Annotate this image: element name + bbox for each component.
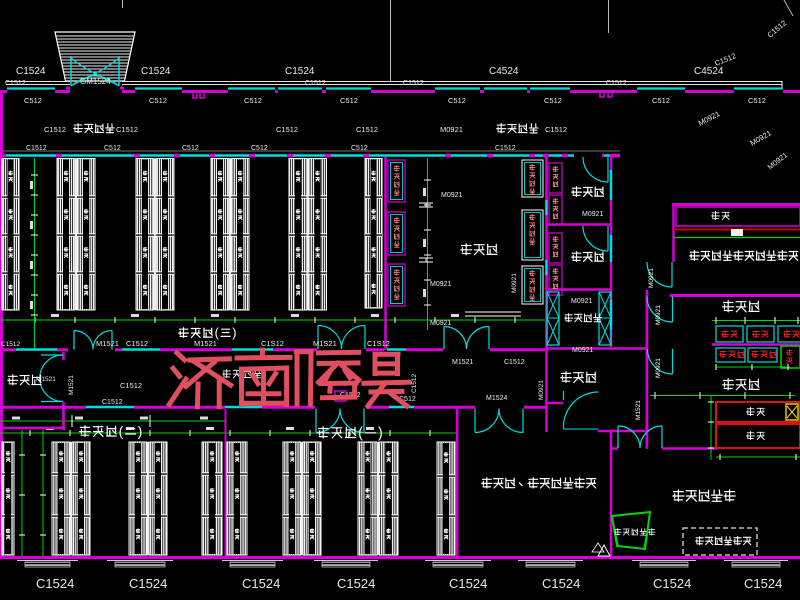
svg-text:M0921: M0921 (440, 125, 463, 134)
svg-text:M0921: M0921 (511, 273, 518, 293)
svg-text:C1524: C1524 (129, 576, 167, 591)
svg-text:C1S12: C1S12 (367, 339, 390, 348)
svg-text:M0921: M0921 (582, 211, 604, 218)
svg-text:M1521: M1521 (194, 339, 217, 348)
svg-text:C1512: C1512 (5, 80, 26, 87)
svg-text:M1521: M1521 (68, 375, 75, 395)
svg-text:C1524: C1524 (337, 576, 375, 591)
svg-text:C512: C512 (652, 96, 670, 105)
svg-text:C512: C512 (544, 96, 562, 105)
svg-text:(: ( (119, 424, 124, 439)
svg-text:C1524: C1524 (449, 576, 487, 591)
svg-text:M1521: M1521 (452, 359, 474, 366)
svg-text:C1512: C1512 (1, 341, 21, 348)
svg-text:C512: C512 (104, 145, 121, 152)
svg-text:): ) (232, 326, 236, 340)
svg-text:M0921: M0921 (430, 320, 452, 327)
svg-text:C1512: C1512 (44, 125, 66, 134)
svg-text:C1524: C1524 (653, 576, 691, 591)
svg-text:M0921: M0921 (441, 192, 463, 199)
svg-text:C1524: C1524 (141, 66, 171, 77)
svg-text:C512: C512 (351, 145, 368, 152)
svg-text:C1512: C1512 (126, 339, 148, 348)
svg-text:): ) (378, 425, 383, 441)
svg-text:C512: C512 (340, 96, 358, 105)
svg-text:C1512: C1512 (116, 125, 138, 134)
svg-text:C1512: C1512 (495, 145, 516, 152)
svg-text:M0921: M0921 (655, 358, 662, 378)
svg-text:M1521: M1521 (96, 339, 119, 348)
svg-text:M0921: M0921 (648, 268, 655, 288)
svg-text:C1512: C1512 (276, 125, 298, 134)
svg-text:C4524: C4524 (694, 66, 724, 77)
svg-text:M1521: M1521 (36, 376, 56, 383)
svg-text:M0921: M0921 (571, 298, 593, 305)
svg-text:C1512: C1512 (403, 80, 424, 87)
svg-text:C1S12: C1S12 (261, 339, 284, 348)
svg-text:): ) (138, 424, 143, 439)
svg-text:C1524: C1524 (16, 66, 46, 77)
svg-text:C512: C512 (251, 145, 268, 152)
svg-text:C1512: C1512 (305, 80, 326, 87)
svg-text:M0921: M0921 (572, 347, 594, 354)
svg-text:C512: C512 (448, 96, 466, 105)
svg-text:M1S21: M1S21 (313, 339, 337, 348)
svg-text:C1512: C1512 (120, 381, 142, 390)
svg-text:C512: C512 (149, 96, 167, 105)
svg-text:C1524: C1524 (36, 576, 74, 591)
svg-text:C1512: C1512 (102, 399, 123, 406)
svg-text:C512: C512 (244, 96, 262, 105)
svg-text:C1524: C1524 (744, 576, 782, 591)
svg-text:C1512: C1512 (356, 125, 378, 134)
svg-text:M0921: M0921 (430, 281, 452, 288)
svg-text:C1512: C1512 (26, 145, 47, 152)
svg-text:C512: C512 (24, 96, 42, 105)
svg-text:GM1524: GM1524 (80, 77, 111, 86)
svg-text:M1524: M1524 (486, 395, 508, 402)
svg-text:(: ( (358, 425, 363, 441)
svg-text:M0921: M0921 (538, 380, 545, 400)
svg-text:C1524: C1524 (542, 576, 580, 591)
svg-text:C512: C512 (748, 96, 766, 105)
svg-text:C1512: C1512 (545, 125, 567, 134)
svg-text:C1512: C1512 (411, 373, 418, 393)
svg-text:C1524: C1524 (242, 576, 280, 591)
svg-text:C1512: C1512 (606, 80, 627, 87)
svg-text:C512: C512 (182, 145, 199, 152)
svg-text:C1512: C1512 (504, 359, 525, 366)
svg-text:C4524: C4524 (489, 66, 519, 77)
svg-text:M0921: M0921 (655, 305, 662, 325)
svg-text:M1521: M1521 (635, 400, 642, 420)
svg-text:C1524: C1524 (285, 66, 315, 77)
